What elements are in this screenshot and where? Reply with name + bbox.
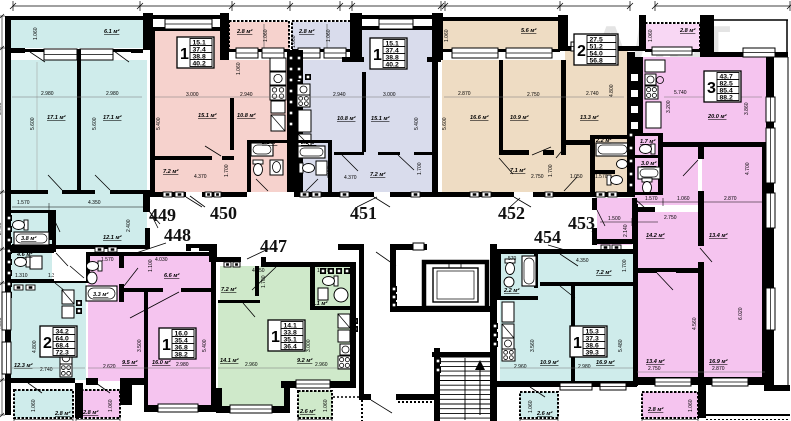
svg-text:40.2: 40.2 — [193, 61, 206, 68]
svg-text:2.870: 2.870 — [712, 366, 725, 372]
svg-text:1.700: 1.700 — [261, 275, 267, 288]
svg-text:5.600: 5.600 — [30, 117, 36, 130]
svg-text:3.000: 3.000 — [306, 339, 312, 352]
svg-text:5.740: 5.740 — [674, 90, 687, 96]
svg-text:2.980: 2.980 — [176, 362, 189, 368]
svg-text:2.870: 2.870 — [724, 196, 737, 202]
svg-text:1.060: 1.060 — [236, 62, 242, 75]
svg-text:17.1 м²: 17.1 м² — [103, 114, 122, 121]
svg-text:2.2 м²: 2.2 м² — [300, 139, 316, 146]
svg-text:16.0 м²: 16.0 м² — [152, 359, 171, 366]
svg-text:2.6 м²: 2.6 м² — [299, 408, 315, 415]
svg-text:1.060: 1.060 — [688, 399, 694, 412]
svg-text:2.750: 2.750 — [531, 174, 544, 180]
svg-text:449: 449 — [149, 205, 176, 225]
svg-text:7.2 м²: 7.2 м² — [596, 269, 611, 276]
svg-text:2.8 м²: 2.8 м² — [82, 409, 98, 416]
svg-text:7.1 м²: 7.1 м² — [510, 167, 525, 174]
svg-text:2.940: 2.940 — [240, 92, 253, 98]
svg-text:5.480: 5.480 — [618, 339, 624, 352]
svg-text:5.400: 5.400 — [156, 117, 162, 130]
svg-text:3.8 м²: 3.8 м² — [21, 235, 36, 242]
svg-text:1.060: 1.060 — [31, 399, 37, 412]
svg-text:4.800: 4.800 — [609, 84, 615, 97]
svg-text:3.0 м²: 3.0 м² — [641, 160, 656, 167]
svg-text:16.9 м²: 16.9 м² — [596, 359, 615, 366]
svg-text:5.400: 5.400 — [202, 339, 208, 352]
svg-text:1.060: 1.060 — [444, 29, 450, 42]
svg-text:2.2 м²: 2.2 м² — [261, 139, 277, 146]
svg-text:450: 450 — [210, 203, 237, 223]
svg-text:38.2: 38.2 — [175, 352, 188, 359]
svg-text:1: 1 — [271, 329, 280, 346]
svg-text:454: 454 — [534, 227, 561, 247]
svg-text:36.4: 36.4 — [284, 344, 297, 351]
svg-text:1.060: 1.060 — [648, 29, 654, 42]
svg-text:4.800: 4.800 — [32, 340, 38, 353]
svg-text:16.9 м²: 16.9 м² — [709, 358, 728, 365]
svg-text:1.700: 1.700 — [548, 164, 554, 177]
svg-text:2.750: 2.750 — [648, 366, 661, 372]
svg-text:7.2 м²: 7.2 м² — [221, 286, 236, 293]
svg-text:1.060: 1.060 — [33, 27, 39, 40]
svg-text:14.1 м²: 14.1 м² — [220, 357, 239, 364]
svg-text:72.3: 72.3 — [56, 350, 69, 357]
svg-text:1.060: 1.060 — [323, 399, 329, 412]
svg-text:1: 1 — [373, 47, 382, 64]
svg-text:2.980: 2.980 — [106, 91, 119, 97]
svg-text:10.9 м²: 10.9 м² — [510, 114, 529, 121]
svg-text:3: 3 — [707, 80, 716, 97]
svg-text:5.6 м²: 5.6 м² — [521, 27, 536, 34]
svg-text:6.6 м²: 6.6 м² — [164, 272, 179, 279]
svg-text:2.620: 2.620 — [103, 364, 116, 370]
svg-text:9.2 м²: 9.2 м² — [297, 357, 312, 364]
svg-text:2.2 м²: 2.2 м² — [503, 287, 519, 294]
svg-text:4.000: 4.000 — [561, 109, 567, 122]
svg-text:40.2: 40.2 — [386, 62, 399, 69]
svg-text:2.8 м²: 2.8 м² — [236, 28, 252, 35]
svg-text:2.980: 2.980 — [578, 364, 591, 370]
svg-text:4.370: 4.370 — [194, 174, 207, 180]
svg-text:3.1 м²: 3.1 м² — [312, 300, 327, 307]
svg-text:5.600: 5.600 — [0, 102, 3, 115]
svg-text:3.200: 3.200 — [666, 100, 672, 113]
svg-text:13.4 м²: 13.4 м² — [646, 358, 665, 365]
svg-text:2.960: 2.960 — [514, 364, 527, 370]
svg-text:56.8: 56.8 — [590, 58, 603, 65]
svg-text:2: 2 — [577, 43, 586, 60]
svg-text:3.500: 3.500 — [137, 339, 143, 352]
svg-text:1.700: 1.700 — [417, 162, 423, 175]
svg-text:17.1 м²: 17.1 м² — [47, 114, 66, 121]
svg-text:6.1 м²: 6.1 м² — [104, 28, 119, 35]
svg-text:15.1 м²: 15.1 м² — [371, 115, 390, 122]
svg-text:2.8 м²: 2.8 м² — [647, 406, 663, 413]
svg-text:2.8 м²: 2.8 м² — [679, 27, 695, 34]
svg-text:1.570: 1.570 — [595, 174, 608, 180]
svg-text:16.6 м²: 16.6 м² — [470, 114, 489, 121]
svg-text:7.2 м²: 7.2 м² — [163, 168, 178, 175]
svg-text:2.8 м²: 2.8 м² — [298, 28, 314, 35]
svg-text:1.700: 1.700 — [224, 164, 230, 177]
svg-text:2.960: 2.960 — [245, 362, 258, 368]
svg-text:1.060: 1.060 — [528, 400, 534, 413]
svg-text:2.750: 2.750 — [664, 215, 677, 221]
svg-text:12.1 м²: 12.1 м² — [103, 234, 122, 241]
svg-text:2.220: 2.220 — [327, 165, 333, 178]
svg-text:1.100: 1.100 — [148, 259, 154, 272]
svg-text:1: 1 — [573, 335, 582, 352]
svg-text:2.140: 2.140 — [623, 224, 629, 237]
svg-text:2.8 м²: 2.8 м² — [54, 410, 70, 417]
svg-text:4.030: 4.030 — [155, 257, 168, 263]
svg-text:39.3: 39.3 — [586, 350, 599, 357]
svg-text:1.050: 1.050 — [570, 174, 583, 180]
svg-text:6.020: 6.020 — [738, 307, 744, 320]
svg-text:2.400: 2.400 — [0, 222, 3, 235]
svg-text:13.4 м²: 13.4 м² — [709, 232, 728, 239]
svg-text:4.560: 4.560 — [692, 317, 698, 330]
svg-text:3.000: 3.000 — [186, 92, 199, 98]
svg-text:2.6 м²: 2.6 м² — [536, 410, 552, 417]
svg-text:7.2 м²: 7.2 м² — [370, 171, 385, 178]
svg-text:5.600: 5.600 — [92, 117, 98, 130]
svg-text:10.9 м²: 10.9 м² — [540, 359, 559, 366]
svg-text:14.2 м²: 14.2 м² — [646, 232, 665, 239]
svg-text:10.8 м²: 10.8 м² — [337, 115, 356, 122]
svg-text:1.060: 1.060 — [108, 399, 114, 412]
svg-text:1.310: 1.310 — [15, 273, 28, 279]
svg-text:4.6 м²: 4.6 м² — [16, 251, 32, 258]
svg-text:15.1 м²: 15.1 м² — [198, 112, 217, 119]
svg-text:447: 447 — [260, 236, 287, 256]
svg-text:13.3 м²: 13.3 м² — [580, 114, 599, 121]
svg-text:2.960: 2.960 — [315, 362, 328, 368]
svg-text:1.570: 1.570 — [101, 257, 114, 263]
svg-text:1.570: 1.570 — [17, 200, 30, 206]
svg-text:10.8 м²: 10.8 м² — [237, 112, 256, 119]
svg-text:570: 570 — [508, 256, 517, 262]
svg-text:3.3 м²: 3.3 м² — [93, 291, 108, 298]
svg-text:2.870: 2.870 — [458, 91, 471, 97]
svg-text:4.370: 4.370 — [344, 175, 357, 181]
svg-text:4.350: 4.350 — [576, 258, 589, 264]
svg-text:4.350: 4.350 — [88, 200, 101, 206]
svg-text:1.500: 1.500 — [608, 216, 621, 222]
svg-text:2: 2 — [43, 335, 52, 352]
svg-text:1.570: 1.570 — [645, 196, 658, 202]
svg-text:3.860: 3.860 — [744, 102, 750, 115]
svg-text:2.2 м²: 2.2 м² — [595, 137, 611, 144]
svg-text:20.0 м²: 20.0 м² — [707, 113, 727, 120]
svg-text:1: 1 — [180, 46, 189, 63]
svg-text:2.980: 2.980 — [41, 91, 54, 97]
svg-text:5.600: 5.600 — [442, 117, 448, 130]
svg-text:1: 1 — [162, 337, 171, 354]
svg-text:4.700: 4.700 — [745, 162, 751, 175]
svg-text:448: 448 — [164, 225, 191, 245]
svg-text:453: 453 — [568, 213, 595, 233]
svg-text:451: 451 — [350, 203, 377, 223]
svg-text:1.060: 1.060 — [291, 35, 297, 48]
svg-text:3.560: 3.560 — [530, 339, 536, 352]
svg-text:2.400: 2.400 — [126, 219, 132, 232]
svg-text:2.740: 2.740 — [586, 91, 599, 97]
svg-text:5.400: 5.400 — [414, 117, 420, 130]
svg-text:1.060: 1.060 — [677, 196, 690, 202]
svg-text:9.5 м²: 9.5 м² — [122, 359, 137, 366]
svg-text:88.2: 88.2 — [720, 95, 733, 102]
svg-text:1.700: 1.700 — [622, 259, 628, 272]
